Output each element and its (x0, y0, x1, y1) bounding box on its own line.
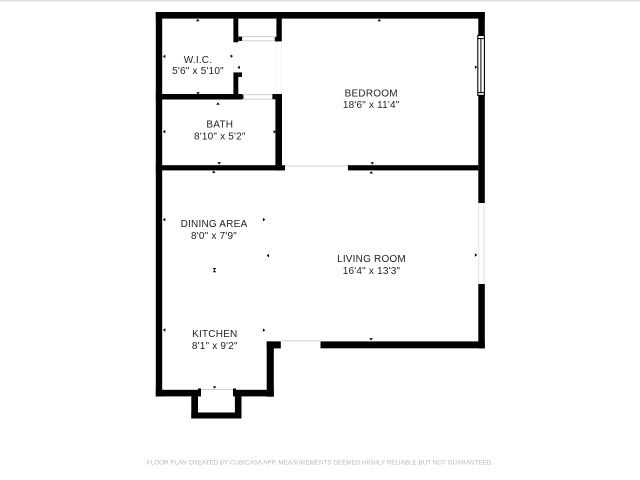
svg-text:8'10" x 5'2": 8'10" x 5'2" (194, 131, 246, 142)
svg-text:FLOOR PLAN CREATED BY CUBICASA: FLOOR PLAN CREATED BY CUBICASA APP. MEAS… (147, 460, 494, 467)
svg-text:LIVING ROOM: LIVING ROOM (337, 254, 406, 265)
svg-text:W.I.C.: W.I.C. (184, 55, 212, 66)
svg-text:KITCHEN: KITCHEN (192, 329, 237, 340)
svg-text:8'1" x 9'2": 8'1" x 9'2" (192, 341, 238, 352)
svg-text:5'6" x 5'10": 5'6" x 5'10" (172, 66, 224, 77)
svg-text:DINING AREA: DINING AREA (181, 219, 248, 230)
svg-text:BEDROOM: BEDROOM (345, 89, 398, 100)
svg-text:BATH: BATH (206, 120, 233, 131)
svg-text:18'6" x 11'4": 18'6" x 11'4" (343, 100, 400, 111)
svg-text:16'4" x 13'3": 16'4" x 13'3" (343, 266, 401, 277)
svg-text:8'0" x 7'9": 8'0" x 7'9" (191, 231, 237, 242)
